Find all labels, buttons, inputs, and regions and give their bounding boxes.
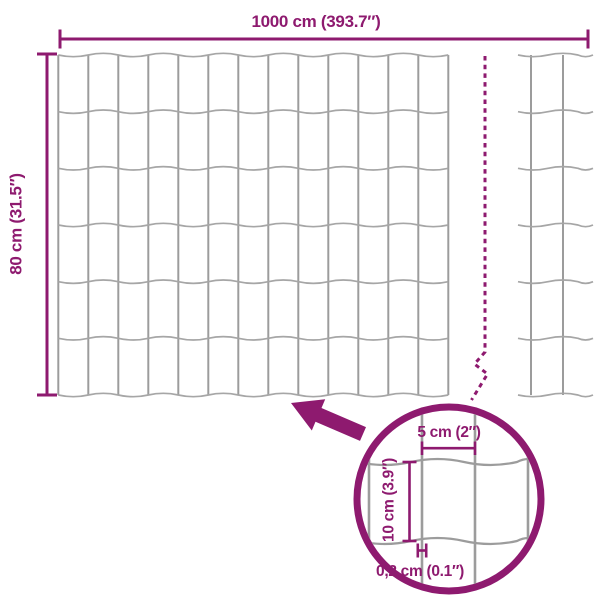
mesh-wire: [518, 393, 593, 396]
detail-callout: 5 cm (2″) 10 cm (3.9″) 0,2 cm (0.1″): [357, 406, 541, 592]
width-dimension: 1000 cm (393.7″): [60, 12, 588, 49]
mesh-wire: [518, 223, 593, 226]
diagram-svg: 1000 cm (393.7″) 80 cm (31.5″) 5 cm (2″): [0, 0, 600, 600]
mesh-wire: [518, 53, 593, 56]
fence-mesh-main: [58, 53, 448, 396]
height-dimension: 80 cm (31.5″): [7, 54, 58, 395]
cell-height-label: 10 cm (3.9″): [381, 458, 398, 542]
mesh-wire: [58, 167, 448, 170]
mesh-wire: [518, 110, 593, 113]
mesh-wire: [58, 223, 448, 226]
height-dimension-label: 80 cm (31.5″): [7, 173, 26, 275]
fence-mesh-continuation: [518, 53, 593, 396]
mesh-wire: [58, 280, 448, 283]
mesh-wire: [518, 337, 593, 340]
mesh-wire: [58, 110, 448, 113]
cell-width-label: 5 cm (2″): [417, 424, 480, 441]
width-dimension-label: 1000 cm (393.7″): [251, 12, 380, 31]
callout-arrow-icon: [291, 399, 366, 441]
mesh-wire: [58, 393, 448, 396]
mesh-wire: [518, 280, 593, 283]
mesh-wire: [58, 337, 448, 340]
fence-break-line: [472, 56, 488, 400]
mesh-wire: [518, 167, 593, 170]
product-dimension-diagram: 1000 cm (393.7″) 80 cm (31.5″) 5 cm (2″): [0, 0, 600, 600]
mesh-wire: [58, 53, 448, 56]
wire-thickness-label: 0,2 cm (0.1″): [376, 563, 464, 580]
